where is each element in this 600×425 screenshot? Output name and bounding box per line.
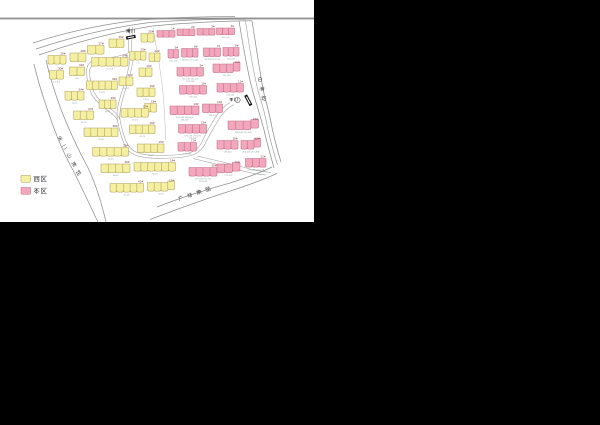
- svg-text:14#: 14#: [217, 100, 222, 104]
- svg-text:105-108: 105-108: [169, 60, 178, 62]
- svg-text:22#: 22#: [154, 49, 159, 53]
- svg-text:13#: 13#: [169, 178, 174, 182]
- svg-text:28#: 28#: [80, 49, 85, 53]
- svg-text:18#: 18#: [232, 136, 237, 140]
- svg-text:4#: 4#: [231, 24, 235, 28]
- svg-text:9#: 9#: [200, 63, 204, 67]
- svg-text:21#: 21#: [127, 73, 132, 77]
- svg-text:115-118 119-120: 115-118 119-120: [204, 59, 221, 61]
- svg-text:36#: 36#: [110, 96, 115, 100]
- svg-text:23-25: 23-25: [81, 122, 87, 124]
- svg-text:24#: 24#: [122, 53, 127, 57]
- svg-text:12-14: 12-14: [72, 102, 78, 104]
- svg-text:15#: 15#: [201, 120, 206, 124]
- svg-text:15-19: 15-19: [99, 92, 105, 94]
- svg-text:29#: 29#: [60, 51, 65, 55]
- svg-text:22#: 22#: [260, 154, 265, 158]
- svg-text:17#: 17#: [191, 138, 196, 142]
- svg-text:36-39: 36-39: [113, 175, 119, 177]
- svg-text:2#: 2#: [191, 25, 195, 29]
- svg-text:161-162 163-164: 161-162 163-164: [176, 117, 193, 119]
- svg-text:39#: 39#: [123, 143, 128, 147]
- svg-text:23#: 23#: [140, 47, 145, 51]
- svg-text:101-104: 101-104: [221, 37, 230, 39]
- svg-text:197-202: 197-202: [223, 151, 232, 153]
- svg-text:37#: 37#: [88, 107, 93, 111]
- svg-text:145-152: 145-152: [189, 96, 198, 98]
- svg-text:20#: 20#: [146, 64, 151, 68]
- svg-text:165-168: 165-168: [180, 120, 189, 122]
- svg-text:15#: 15#: [158, 140, 163, 144]
- svg-text:169-174: 169-174: [208, 115, 217, 117]
- svg-text:10#: 10#: [234, 60, 239, 64]
- svg-text:1-2 3-4: 1-2 3-4: [53, 81, 61, 83]
- svg-text:18#: 18#: [151, 99, 156, 103]
- svg-text:28-33: 28-33: [152, 173, 158, 175]
- svg-text:10-12: 10-12: [123, 88, 129, 90]
- svg-text:13#: 13#: [193, 102, 198, 106]
- svg-text:5#: 5#: [175, 45, 179, 49]
- svg-text:19#: 19#: [149, 84, 154, 88]
- svg-text:203-206 207-208: 203-206 207-208: [242, 151, 259, 153]
- svg-text:20-23: 20-23: [139, 136, 145, 138]
- svg-text:34#: 34#: [78, 87, 83, 91]
- svg-text:26-30: 26-30: [98, 139, 104, 141]
- svg-text:109-112 113-114: 109-112 113-114: [182, 59, 199, 61]
- svg-text:21#: 21#: [234, 160, 239, 164]
- svg-text:16-19: 16-19: [132, 119, 138, 121]
- svg-text:17#: 17#: [143, 104, 148, 108]
- svg-text:26#: 26#: [118, 35, 123, 39]
- svg-text:20#: 20#: [211, 163, 216, 167]
- svg-text:6#: 6#: [194, 44, 198, 48]
- svg-text:16#: 16#: [253, 117, 258, 121]
- svg-text:31-35: 31-35: [108, 158, 114, 160]
- svg-text:175-176 177-178: 175-176 177-178: [184, 135, 201, 137]
- svg-text:30#: 30#: [58, 66, 63, 70]
- svg-text:40-44: 40-44: [124, 194, 130, 196]
- svg-text:7#: 7#: [217, 44, 221, 48]
- svg-text:40#: 40#: [124, 160, 129, 164]
- svg-text:133-136: 133-136: [186, 81, 195, 83]
- svg-text:41#: 41#: [138, 179, 143, 183]
- svg-text:13-15: 13-15: [143, 99, 149, 101]
- svg-text:191-196: 191-196: [183, 153, 192, 155]
- svg-text:24-27: 24-27: [148, 155, 154, 157]
- svg-text:16#: 16#: [149, 121, 154, 125]
- svg-text:19#: 19#: [255, 136, 260, 140]
- svg-text:153-160: 153-160: [226, 94, 235, 96]
- svg-text:183-186 187-190: 183-186 187-190: [235, 132, 252, 134]
- svg-text:38#: 38#: [112, 124, 117, 128]
- svg-text:20-22: 20-22: [105, 111, 111, 113]
- svg-text:217-222: 217-222: [224, 175, 233, 177]
- svg-text:137-144: 137-144: [222, 75, 231, 77]
- svg-text:1-3 4-6: 1-3 4-6: [106, 68, 114, 70]
- svg-text:8#: 8#: [235, 43, 239, 47]
- svg-text:33#: 33#: [112, 77, 117, 81]
- svg-text:31#: 31#: [79, 63, 84, 67]
- svg-text:3#: 3#: [211, 24, 215, 28]
- svg-text:34-37: 34-37: [158, 193, 164, 195]
- svg-text:27#: 27#: [98, 41, 103, 45]
- svg-text:11#: 11#: [201, 81, 206, 85]
- svg-text:213-216: 213-216: [199, 181, 208, 183]
- svg-text:1#: 1#: [171, 26, 175, 30]
- svg-text:14#: 14#: [170, 158, 175, 162]
- svg-text:25#: 25#: [148, 29, 153, 33]
- svg-text:223-226 227-228: 223-226 227-228: [247, 169, 264, 171]
- svg-text:12#: 12#: [238, 79, 243, 83]
- svg-text:209-210 211-212: 209-210 211-212: [195, 178, 212, 180]
- svg-text:127-130 131-132: 127-130 131-132: [182, 78, 199, 80]
